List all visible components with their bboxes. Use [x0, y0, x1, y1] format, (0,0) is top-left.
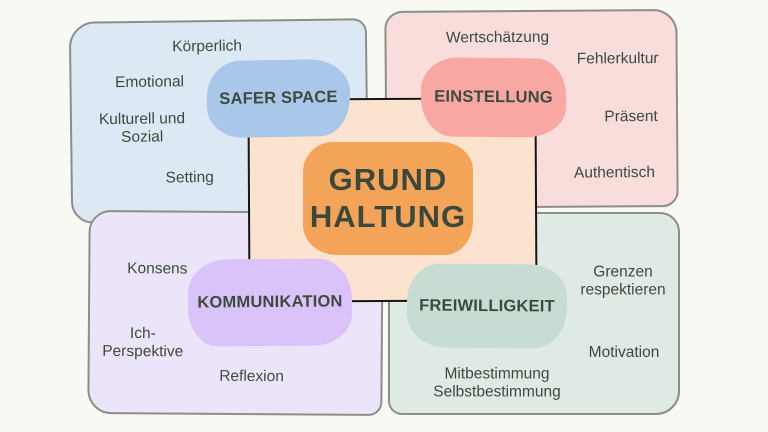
pill-freiwilligkeit: FREIWILLIGKEIT [407, 263, 568, 348]
item-setting: Setting [165, 169, 213, 188]
pill-safer-space: SAFER SPACE [206, 59, 350, 138]
center-title-box: GRUND HALTUNG [303, 142, 473, 255]
item-grenzen-respektieren: Grenzen respektieren [580, 264, 665, 301]
item-authentisch: Authentisch [574, 164, 655, 183]
item-ich-perspektive: Ich- Perspektive [102, 325, 183, 362]
item-koerperlich: Körperlich [172, 38, 242, 57]
item-mitbestimmung-selbstbestimmung: Mitbestimmung Selbstbestimmung [433, 366, 561, 403]
item-emotional: Emotional [115, 73, 184, 92]
grundhaltung-diagram: Körperlich Emotional Kulturell und Sozia… [0, 0, 768, 432]
item-fehlerkultur: Fehlerkultur [577, 50, 659, 69]
item-kulturell-und-sozial: Kulturell und Sozial [99, 110, 186, 148]
item-praesent: Präsent [604, 108, 658, 127]
item-konsens: Konsens [127, 260, 187, 279]
item-reflexion: Reflexion [219, 368, 284, 387]
item-motivation: Motivation [589, 344, 660, 362]
center-title: GRUND HALTUNG [310, 162, 466, 235]
item-wertschaetzung: Wertschätzung [446, 29, 549, 48]
pill-einstellung: EINSTELLUNG [421, 57, 567, 137]
pill-kommunikation: KOMMUNIKATION [188, 258, 353, 346]
